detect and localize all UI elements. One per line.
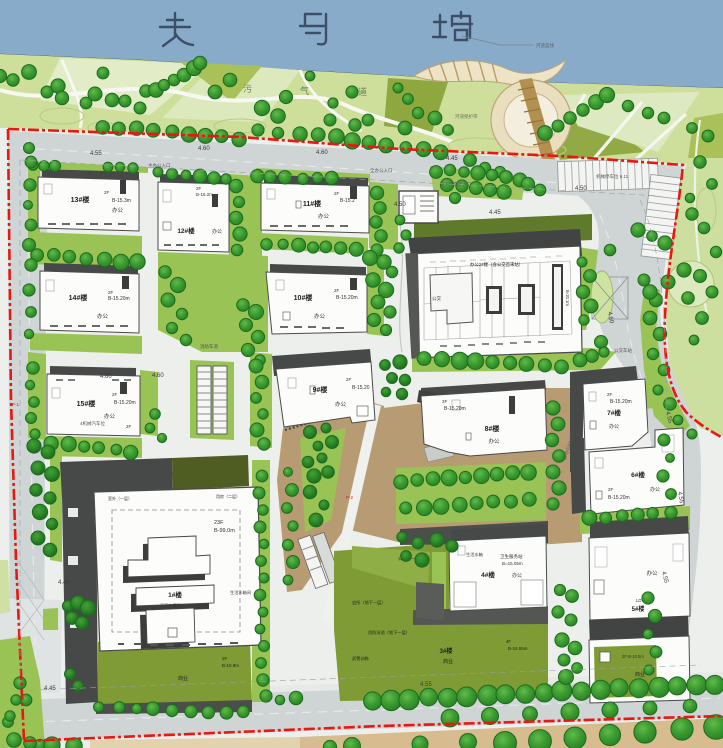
svg-text:2F: 2F — [334, 288, 340, 293]
svg-text:办公: 办公 — [97, 312, 109, 320]
svg-text:4.55: 4.55 — [420, 682, 432, 688]
svg-text:全办公入口: 全办公入口 — [370, 167, 393, 174]
svg-text:3#楼: 3#楼 — [440, 647, 453, 655]
svg-text:消防车道: 消防车道 — [200, 343, 218, 350]
svg-text:B-15.20m: B-15.20m — [336, 295, 358, 301]
svg-text:办公: 办公 — [512, 572, 522, 579]
svg-text:办公: 办公 — [650, 486, 660, 493]
svg-text:4#楼: 4#楼 — [481, 570, 495, 579]
svg-text:B-15.20m: B-15.20m — [444, 406, 466, 412]
svg-text:道: 道 — [358, 86, 367, 97]
svg-text:地下汽车库入口: 地下汽车库入口 — [440, 181, 472, 188]
svg-text:B-15.20m: B-15.20m — [108, 296, 130, 302]
svg-text:1#楼: 1#楼 — [168, 590, 182, 599]
svg-text:4.45: 4.45 — [446, 156, 458, 162]
svg-text:B-99.0m: B-99.0m — [214, 528, 235, 534]
svg-text:2F: 2F — [196, 186, 202, 191]
svg-text:办公: 办公 — [212, 228, 222, 235]
svg-text:2F: 2F — [346, 377, 352, 382]
svg-text:会所（地下一层）: 会所（地下一层） — [352, 599, 386, 606]
svg-text:B-10.9m: B-10.9m — [222, 663, 239, 668]
svg-text:15#楼: 15#楼 — [77, 399, 96, 408]
svg-text:办公: 办公 — [646, 569, 658, 577]
svg-text:23F: 23F — [214, 520, 224, 526]
svg-text:公交车站: 公交车站 — [614, 347, 632, 354]
svg-text:污: 污 — [243, 83, 252, 94]
svg-text:B-15.20m: B-15.20m — [608, 495, 630, 501]
svg-text:2F B-10.5m: 2F B-10.5m — [622, 654, 644, 659]
svg-text:河道蓝线: 河道蓝线 — [536, 42, 554, 49]
svg-text:P-1: P-1 — [12, 402, 20, 407]
svg-text:4.45: 4.45 — [489, 210, 501, 216]
svg-text:14#楼: 14#楼 — [69, 293, 88, 302]
svg-text:卫生服务站: 卫生服务站 — [500, 553, 523, 560]
svg-text:用房（二层）: 用房（二层） — [216, 493, 240, 499]
svg-text:B-20.1m: B-20.1m — [565, 290, 570, 306]
svg-text:4.50: 4.50 — [394, 202, 406, 208]
svg-text:气: 气 — [300, 85, 309, 96]
svg-text:10#楼: 10#楼 — [294, 293, 313, 302]
svg-text:4.60: 4.60 — [198, 146, 210, 152]
svg-text:生活水箱间: 生活水箱间 — [230, 589, 251, 596]
svg-text:办公: 办公 — [609, 423, 619, 430]
svg-text:主办公入口: 主办公入口 — [148, 162, 171, 169]
svg-text:B=15.05m: B=15.05m — [502, 561, 523, 566]
svg-text:4.40: 4.40 — [58, 580, 70, 586]
svg-text:4.60: 4.60 — [152, 373, 164, 379]
svg-text:办公2#楼（含公交首末站）: 办公2#楼（含公交首末站） — [470, 261, 523, 268]
svg-text:4.55: 4.55 — [90, 151, 102, 157]
svg-text:生活水箱: 生活水箱 — [466, 551, 483, 558]
svg-text:B-15.20: B-15.20 — [352, 385, 370, 391]
svg-text:5#楼: 5#楼 — [632, 605, 645, 613]
svg-text:12#楼: 12#楼 — [177, 226, 195, 235]
svg-text:公交: 公交 — [432, 295, 441, 302]
svg-text:2F: 2F — [442, 399, 448, 404]
svg-text:办公: 办公 — [104, 412, 116, 420]
svg-text:消防泳池（地下一层）: 消防泳池（地下一层） — [368, 629, 410, 636]
svg-text:2F: 2F — [126, 424, 132, 429]
svg-text:4.50: 4.50 — [575, 186, 587, 192]
svg-text:河道保护带: 河道保护带 — [455, 113, 478, 120]
svg-text:商业: 商业 — [635, 671, 645, 678]
svg-text:2F: 2F — [334, 191, 340, 196]
svg-text:2F: 2F — [222, 656, 228, 661]
svg-text:B-15.3m: B-15.3m — [112, 198, 131, 204]
svg-text:6#楼: 6#楼 — [631, 470, 645, 479]
svg-text:4.60: 4.60 — [316, 150, 328, 156]
svg-text:B-15.20m: B-15.20m — [114, 400, 136, 406]
svg-text:B-15.20m: B-15.20m — [610, 399, 632, 405]
svg-text:商业: 商业 — [178, 675, 188, 682]
svg-text:13#楼: 13#楼 — [71, 195, 90, 204]
svg-text:机械停车位 6.11: 机械停车位 6.11 — [596, 173, 629, 180]
svg-text:武警训练: 武警训练 — [352, 655, 370, 662]
svg-text:办公: 办公 — [314, 312, 326, 320]
svg-text:2F: 2F — [104, 190, 110, 195]
svg-text:办公: 办公 — [318, 212, 330, 220]
svg-text:P-2: P-2 — [346, 495, 354, 500]
svg-text:B-19.55m: B-19.55m — [508, 646, 528, 651]
svg-text:11#楼: 11#楼 — [303, 199, 321, 208]
svg-text:办公: 办公 — [112, 206, 124, 214]
svg-text:4机械汽车位: 4机械汽车位 — [80, 420, 106, 427]
svg-text:B-15.2: B-15.2 — [340, 198, 355, 204]
svg-text:7#楼: 7#楼 — [607, 408, 621, 417]
svg-text:商业: 商业 — [443, 658, 453, 665]
svg-text:2F: 2F — [112, 392, 118, 397]
svg-text:B-15.2m: B-15.2m — [196, 192, 213, 197]
svg-text:4.60: 4.60 — [100, 374, 112, 380]
svg-text:2F: 2F — [607, 392, 613, 397]
svg-text:办公: 办公 — [488, 437, 500, 445]
svg-text:平面布置见: 平面布置见 — [160, 602, 181, 609]
svg-text:2F: 2F — [108, 290, 114, 295]
svg-text:室外（一层）: 室外（一层） — [108, 495, 132, 501]
svg-text:8#楼: 8#楼 — [485, 424, 500, 433]
svg-text:2F: 2F — [608, 487, 614, 492]
svg-text:办公: 办公 — [335, 400, 347, 408]
svg-text:4F: 4F — [506, 639, 511, 644]
svg-text:9#楼: 9#楼 — [313, 385, 328, 394]
